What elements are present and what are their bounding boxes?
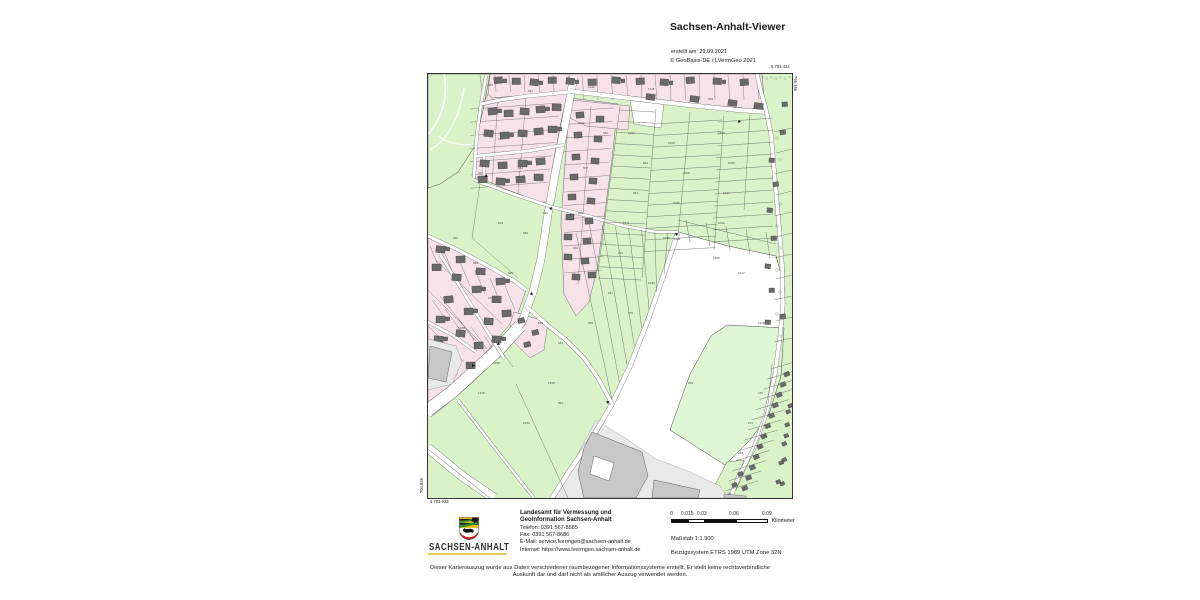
svg-text:648: 648	[473, 261, 478, 265]
svg-text:246: 246	[738, 451, 743, 455]
svg-text:649: 649	[573, 246, 578, 250]
svg-text:260: 260	[708, 97, 713, 101]
svg-text:1280: 1280	[523, 421, 530, 425]
svg-text:667: 667	[583, 166, 588, 170]
svg-text:1344: 1344	[648, 281, 655, 285]
svg-text:655: 655	[578, 211, 583, 215]
svg-text:1318: 1318	[758, 321, 765, 325]
svg-text:1145: 1145	[648, 87, 655, 91]
svg-text:272: 272	[748, 421, 753, 425]
svg-text:206: 206	[688, 381, 693, 385]
svg-text:270: 270	[758, 391, 763, 395]
svg-text:1118: 1118	[674, 237, 681, 241]
svg-text:647: 647	[558, 341, 563, 345]
svg-text:979: 979	[628, 311, 633, 315]
svg-text:1298: 1298	[493, 361, 500, 365]
svg-text:663: 663	[488, 83, 493, 87]
svg-text:1008: 1008	[683, 171, 690, 175]
svg-text:675: 675	[488, 296, 493, 300]
svg-text:1036: 1036	[728, 161, 735, 165]
svg-text:642: 642	[478, 171, 483, 175]
svg-text:1014: 1014	[723, 191, 730, 195]
svg-text:1042: 1042	[718, 221, 725, 225]
svg-text:676: 676	[618, 251, 623, 255]
svg-text:667: 667	[528, 89, 533, 93]
svg-text:652: 652	[543, 211, 548, 215]
svg-text:619: 619	[538, 321, 543, 325]
svg-text:1144: 1144	[623, 221, 630, 225]
svg-text:1278: 1278	[478, 391, 485, 395]
svg-text:893: 893	[558, 401, 563, 405]
svg-text:641: 641	[498, 137, 503, 141]
svg-text:650: 650	[523, 231, 528, 235]
svg-text:1140: 1140	[588, 85, 595, 89]
svg-text:1003: 1003	[668, 141, 675, 145]
svg-text:1100: 1100	[578, 121, 585, 125]
svg-text:1305: 1305	[718, 131, 725, 135]
svg-text:967: 967	[608, 291, 613, 295]
svg-text:1025: 1025	[673, 201, 680, 205]
svg-text:1398: 1398	[548, 381, 555, 385]
svg-text:1508: 1508	[713, 256, 720, 260]
svg-text:660: 660	[603, 131, 608, 135]
svg-text:636: 636	[453, 236, 458, 240]
svg-text:649: 649	[498, 221, 503, 225]
svg-text:1017: 1017	[738, 271, 745, 275]
svg-text:1019: 1019	[663, 236, 670, 240]
svg-text:984: 984	[643, 161, 648, 165]
svg-text:1286: 1286	[458, 326, 465, 330]
svg-text:645: 645	[508, 271, 513, 275]
svg-text:654: 654	[518, 166, 523, 170]
svg-text:664: 664	[633, 191, 638, 195]
svg-text:1093: 1093	[628, 131, 635, 135]
svg-text:958: 958	[588, 321, 593, 325]
